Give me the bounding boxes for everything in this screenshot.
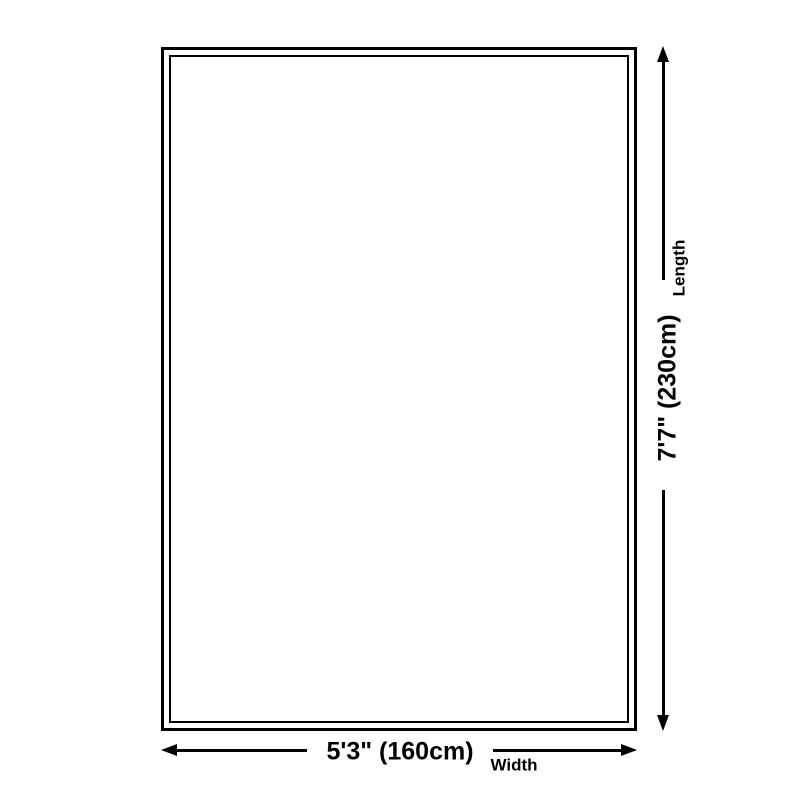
length-arrow-line-lower	[662, 490, 665, 718]
length-value: 7'7" (230cm)	[656, 314, 681, 461]
width-arrow-line-right	[493, 749, 623, 752]
width-arrow-line-left	[175, 749, 307, 752]
length-label: Length	[671, 240, 688, 297]
arrow-down-icon	[657, 715, 669, 731]
length-arrow-line-upper	[662, 60, 665, 280]
rug-outline	[161, 47, 637, 731]
width-value: 5'3" (160cm)	[326, 740, 473, 765]
arrow-right-icon	[621, 744, 637, 756]
width-label: Width	[490, 757, 537, 774]
rug-dimension-diagram: 7'7" (230cm) Length 5'3" (160cm) Width	[0, 0, 800, 800]
rug-inner-border	[169, 55, 629, 723]
